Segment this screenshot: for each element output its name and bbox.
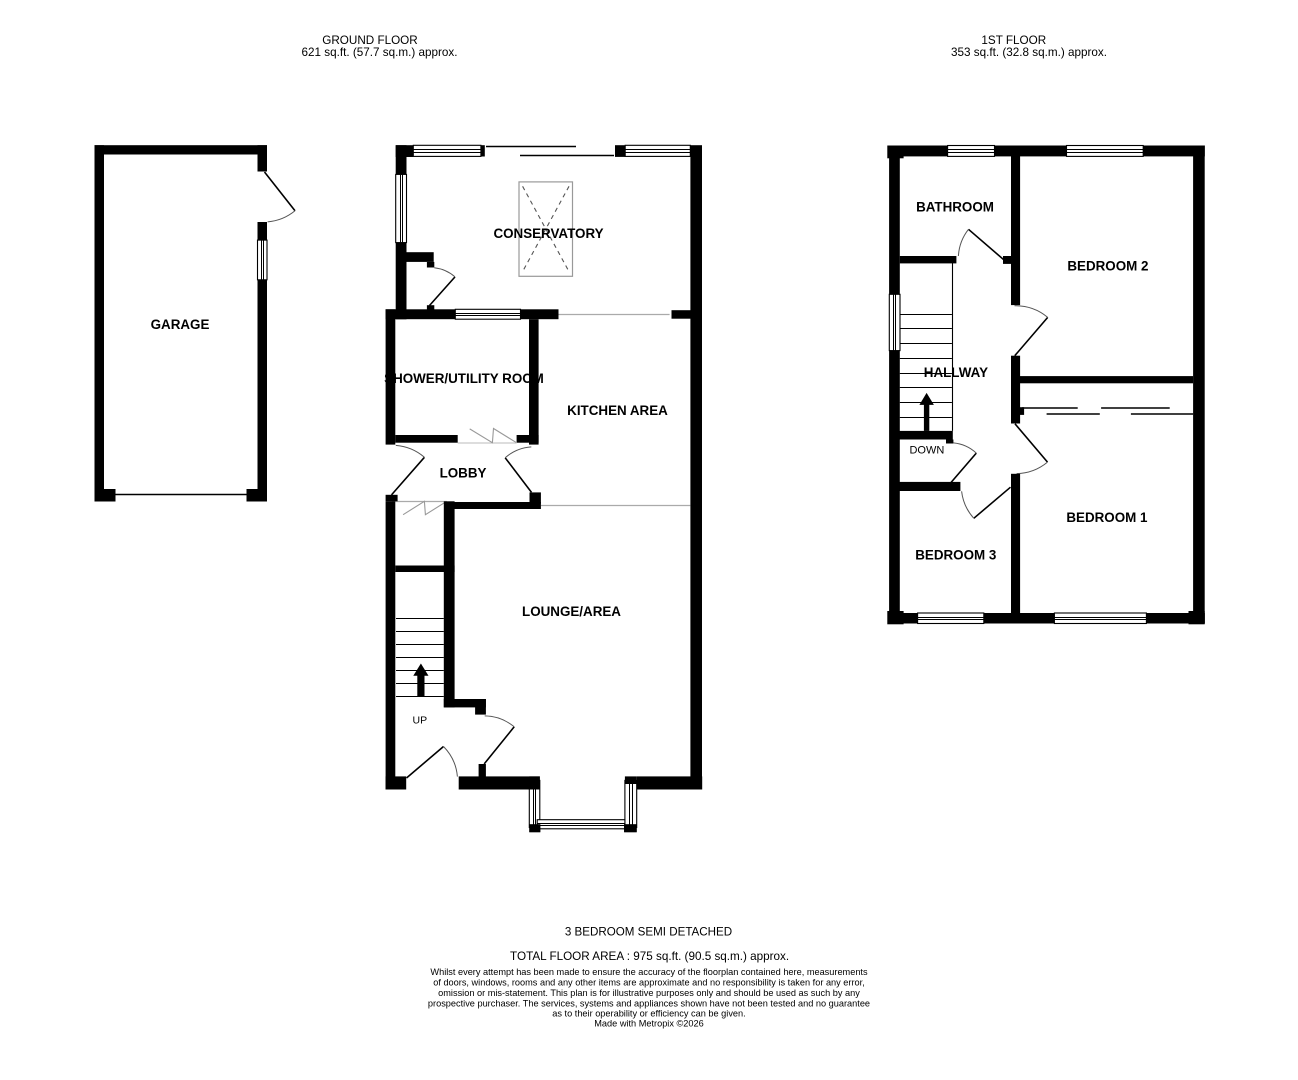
svg-text:UP: UP [413,715,428,727]
svg-text:KITCHEN AREA: KITCHEN AREA [567,403,668,418]
svg-text:LOBBY: LOBBY [440,466,487,481]
svg-text:SHOWER/UTILITY ROOM: SHOWER/UTILITY ROOM [384,371,544,386]
svg-text:BEDROOM 2: BEDROOM 2 [1067,259,1148,274]
svg-text:omission or mis-statement. Thi: omission or mis-statement. This plan is … [438,988,860,998]
svg-text:DOWN: DOWN [909,444,944,456]
svg-text:BEDROOM 1: BEDROOM 1 [1066,510,1148,525]
svg-text:BATHROOM: BATHROOM [916,199,994,214]
svg-text:CONSERVATORY: CONSERVATORY [493,226,603,241]
svg-text:BEDROOM 3: BEDROOM 3 [915,548,996,563]
svg-text:GARAGE: GARAGE [151,317,210,332]
svg-text:353 sq.ft. (32.8 sq.m.) approx: 353 sq.ft. (32.8 sq.m.) approx. [951,46,1107,59]
svg-text:3 BEDROOM SEMI DETACHED: 3 BEDROOM SEMI DETACHED [565,926,732,939]
svg-text:as to their operability or eff: as to their operability or efficiency ca… [552,1008,745,1018]
svg-text:of doors, windows, rooms and a: of doors, windows, rooms and any other i… [433,978,865,988]
svg-text:HALLWAY: HALLWAY [924,365,988,380]
svg-text:621 sq.ft. (57.7 sq.m.) approx: 621 sq.ft. (57.7 sq.m.) approx. [302,46,458,59]
svg-text:TOTAL FLOOR AREA : 975 sq.ft.: TOTAL FLOOR AREA : 975 sq.ft. (90.5 sq.m… [510,950,789,963]
svg-text:Whilst every attempt has been: Whilst every attempt has been made to en… [430,967,868,977]
svg-text:prospective purchaser. The ser: prospective purchaser. The services, sys… [428,998,870,1008]
svg-text:Made with Metropix ©2026: Made with Metropix ©2026 [594,1019,703,1029]
svg-text:LOUNGE/AREA: LOUNGE/AREA [522,604,621,619]
